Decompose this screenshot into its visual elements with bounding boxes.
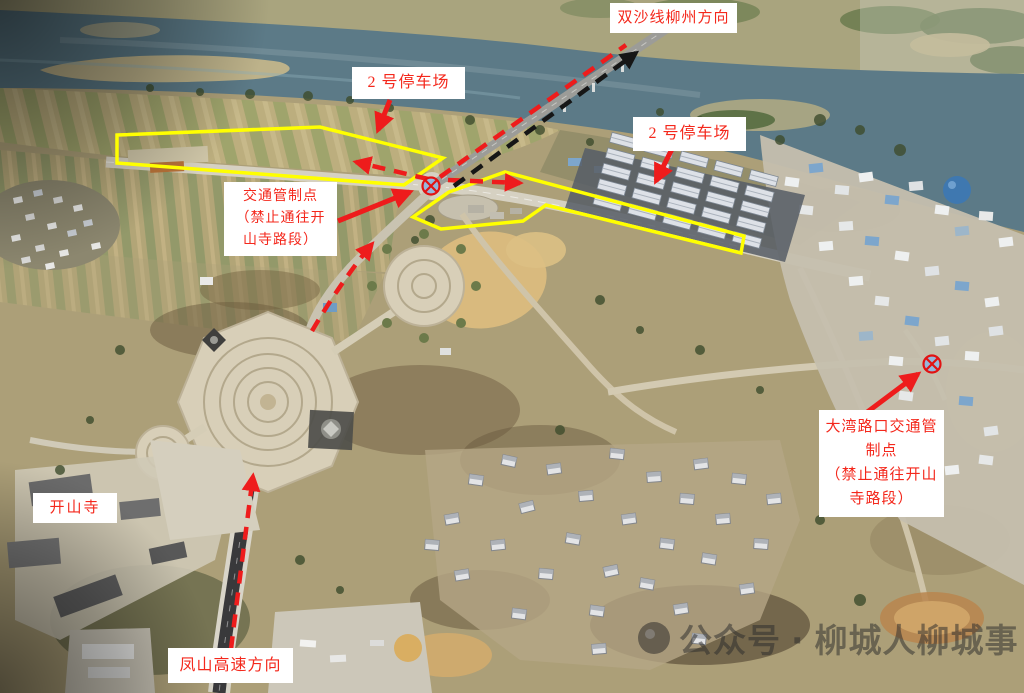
pointer-arrows — [338, 100, 918, 413]
label-text-line: 山寺路段） — [224, 230, 337, 252]
label-text-line: 交通管制点 — [224, 186, 337, 208]
no-entry-symbol-dawan — [924, 356, 941, 373]
yellow-zone-parking-west — [117, 127, 443, 185]
watermark-name: 柳城人柳城事 — [815, 621, 1019, 660]
label-parking-lot-2-east: 2 号停车场 — [633, 117, 746, 151]
pointer-parking-east — [656, 147, 673, 181]
route-arrow-temple-road — [312, 244, 372, 331]
pointer-control-point — [338, 192, 410, 221]
route-line-bridge-red — [440, 45, 626, 177]
watermark-separator: · — [791, 621, 805, 660]
wechat-account-logo-icon — [638, 622, 670, 654]
label-text-line: 大湾路口交通管 — [819, 415, 944, 439]
label-kaishan-temple: 开山寺 — [33, 493, 117, 523]
watermark-text: 公众号·柳城人柳城事 — [679, 614, 1019, 662]
no-entry-symbol-junction — [423, 178, 440, 195]
label-text: 2 号停车场 — [367, 74, 449, 91]
label-text-line: 寺路段） — [819, 487, 944, 511]
label-text-line: 制点 — [819, 439, 944, 463]
yellow-zone-parking-east — [413, 172, 744, 253]
watermark-prefix: 公众号 — [679, 621, 781, 660]
pointer-dawan — [866, 374, 918, 413]
pointer-parking-west — [378, 100, 390, 130]
route-arrow-expressway-road — [231, 476, 253, 649]
label-text: 凤山高速方向 — [179, 657, 281, 674]
label-text-line: （禁止通往开 — [224, 208, 337, 230]
annotated-aerial-traffic-map: 双沙线柳州方向 2 号停车场 2 号停车场 交通管制点 （禁止通往开 山寺路段）… — [0, 0, 1024, 693]
annotation-layer — [0, 0, 1024, 693]
label-fengshan-expressway-direction: 凤山高速方向 — [168, 648, 293, 683]
label-text: 开山寺 — [49, 500, 100, 516]
label-traffic-control-point: 交通管制点 （禁止通往开 山寺路段） — [224, 182, 337, 256]
label-text: 双沙线柳州方向 — [617, 10, 729, 26]
label-text: 2 号停车场 — [648, 125, 730, 142]
route-arrows-dashed — [231, 45, 626, 649]
label-dawan-control-point: 大湾路口交通管 制点 （禁止通往开山 寺路段） — [819, 410, 944, 517]
label-shuangsha-liuzhou-direction: 双沙线柳州方向 — [610, 3, 737, 33]
label-text-line: （禁止通往开山 — [819, 463, 944, 487]
watermark: 公众号·柳城人柳城事 — [638, 612, 1019, 664]
label-parking-lot-2-west: 2 号停车场 — [352, 67, 465, 99]
route-arrow-bridge-black — [454, 53, 636, 186]
route-arrow-west — [356, 162, 428, 179]
